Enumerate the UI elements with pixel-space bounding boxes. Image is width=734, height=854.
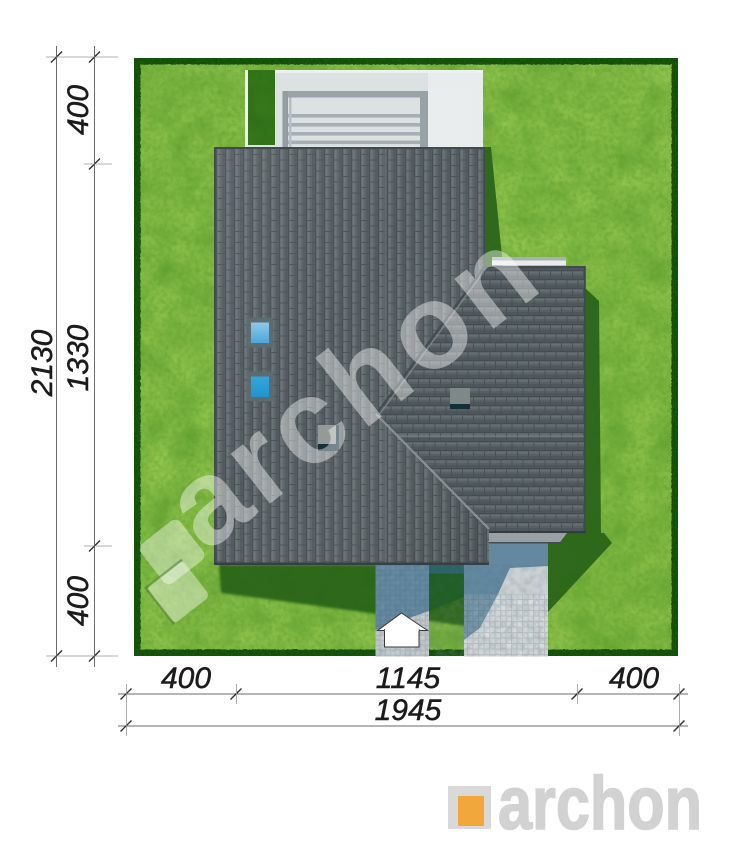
svg-text:400: 400 (609, 662, 659, 695)
svg-text:2130: 2130 (26, 329, 59, 397)
svg-text:400: 400 (62, 576, 95, 626)
svg-text:1945: 1945 (375, 694, 442, 727)
svg-text:1330: 1330 (62, 324, 95, 391)
svg-text:400: 400 (62, 85, 95, 135)
svg-text:1145: 1145 (376, 662, 441, 695)
svg-text:archon: archon (498, 761, 702, 845)
svg-text:400: 400 (161, 662, 211, 695)
